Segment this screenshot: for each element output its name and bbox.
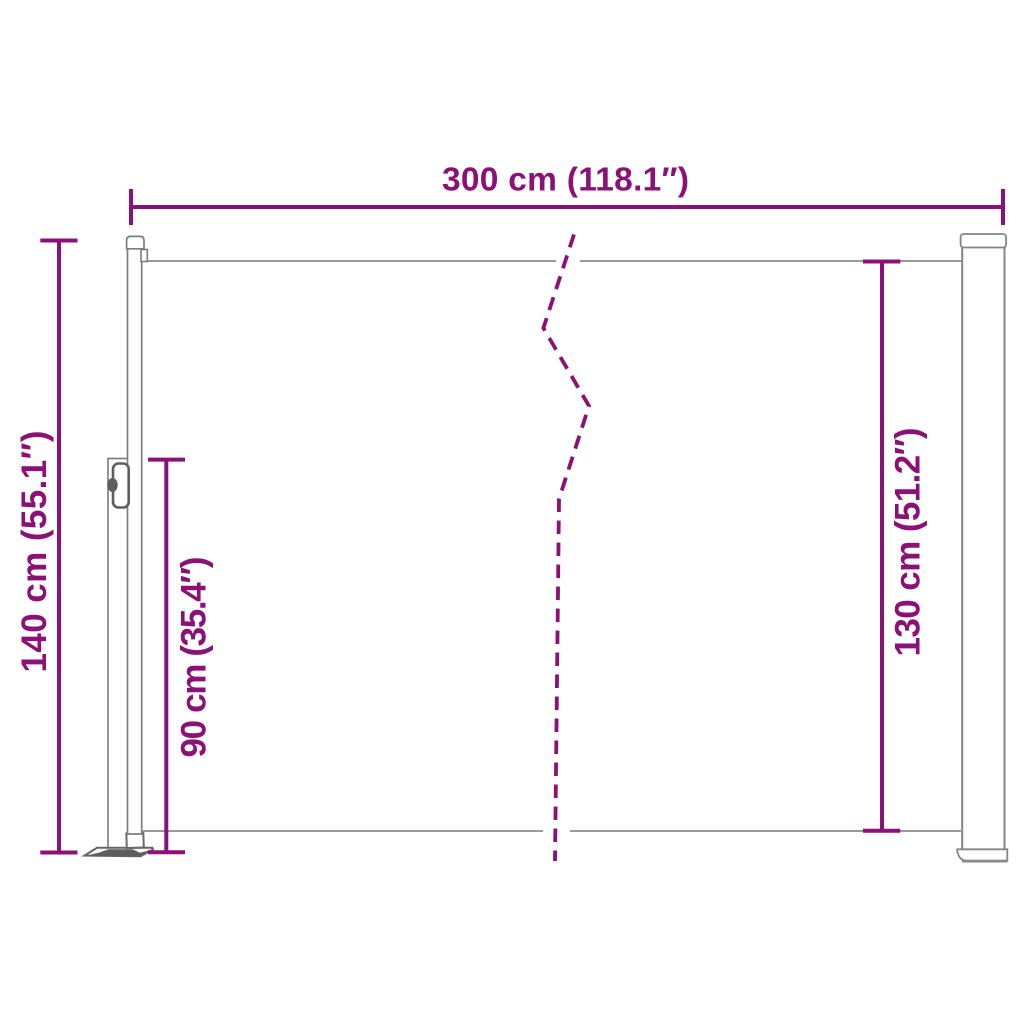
svg-text:140 cm (55.1″): 140 cm (55.1″) [15,431,54,673]
svg-text:300 cm (118.1″): 300 cm (118.1″) [442,161,689,198]
svg-text:90 cm (35.4″): 90 cm (35.4″) [174,557,213,758]
svg-text:130 cm (51.2″): 130 cm (51.2″) [888,428,927,657]
